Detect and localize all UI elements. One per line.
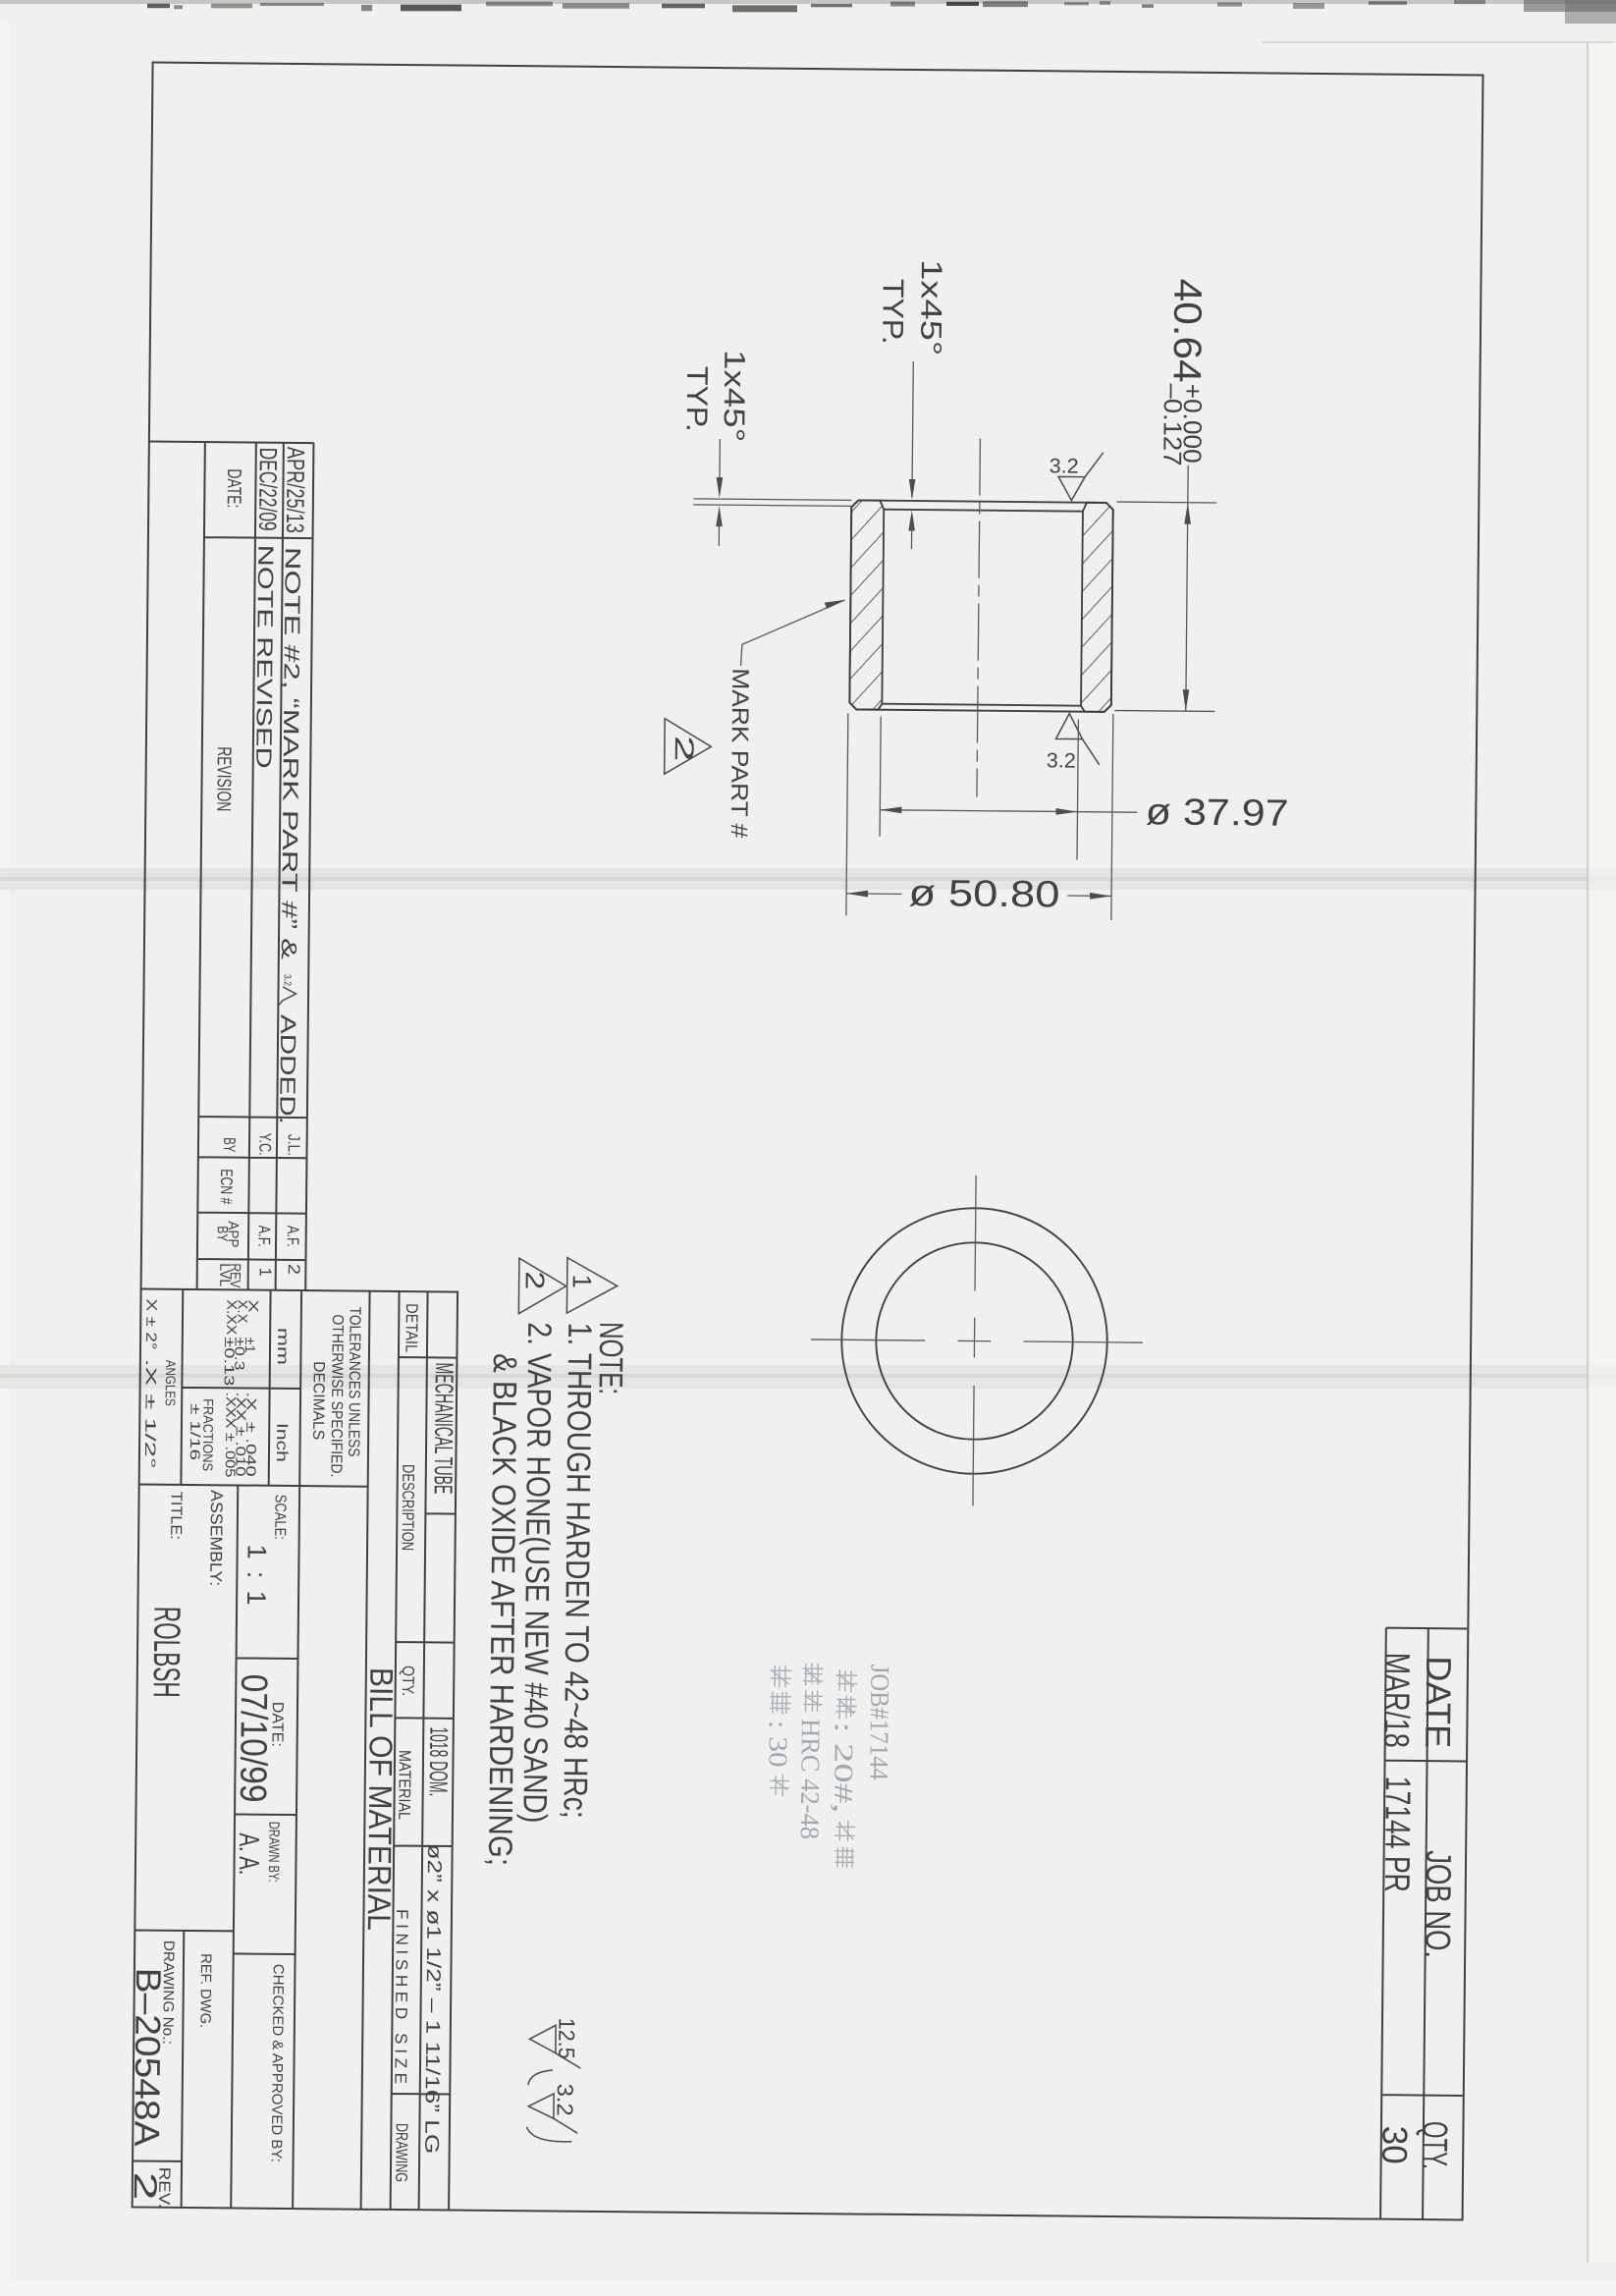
svg-text:mm: mm	[274, 1328, 291, 1365]
svg-text:LVL: LVL	[216, 1263, 233, 1286]
svg-text:A. A.: A. A.	[233, 1832, 264, 1875]
svg-text:NOTE REVISED: NOTE REVISED	[251, 545, 278, 769]
svg-text:17144 PR: 17144 PR	[1377, 1777, 1419, 1892]
svg-text:: 30: : 30	[763, 1721, 792, 1768]
svg-text:ø 50.80: ø 50.80	[908, 873, 1059, 915]
svg-text:FINISHED SIZE: FINISHED SIZE	[391, 1909, 411, 2084]
svg-text:DECIMALS: DECIMALS	[309, 1361, 327, 1440]
svg-text:.X ± 1/2°: .X ± 1/2°	[141, 1359, 159, 1469]
svg-text:3.2: 3.2	[282, 974, 293, 986]
svg-text:MARK PART #: MARK PART #	[726, 668, 754, 839]
svg-text:BY: BY	[220, 1137, 239, 1152]
svg-text:A.F.: A.F.	[254, 1226, 273, 1247]
svg-text:JOB NO.: JOB NO.	[1418, 1850, 1459, 1958]
svg-text:07/10/99: 07/10/99	[232, 1673, 274, 1802]
svg-text:2: 2	[520, 1271, 550, 1289]
svg-text:±0.13: ±0.13	[222, 1337, 238, 1386]
svg-text:SCALE:: SCALE:	[271, 1495, 288, 1540]
svg-text:ANGLES: ANGLES	[163, 1360, 179, 1406]
svg-text:ø2” x ø1 1/2” – 1 11/16” LG: ø2” x ø1 1/2” – 1 11/16” LG	[420, 1843, 445, 2154]
svg-text:Inch: Inch	[273, 1423, 290, 1462]
svg-text:CHECKED & APPROVED BY:: CHECKED & APPROVED BY:	[268, 1964, 287, 2162]
svg-text:J.L.: J.L.	[285, 1134, 303, 1156]
svg-text:REF. DWG.: REF. DWG.	[196, 1953, 214, 2028]
svg-text:3.2: 3.2	[1047, 749, 1076, 772]
svg-text:1: 1	[567, 1275, 597, 1288]
svg-text:BILL OF MATERIAL: BILL OF MATERIAL	[361, 1667, 401, 1931]
svg-text:JOB#17144: JOB#17144	[864, 1665, 894, 1781]
svg-text:B–20548A: B–20548A	[127, 1967, 169, 2146]
svg-text:TITLE:: TITLE:	[167, 1492, 184, 1540]
svg-text:2: 2	[128, 2171, 164, 2200]
svg-text:X ± 2°: X ± 2°	[142, 1299, 159, 1350]
svg-text:ASSEMBLY:: ASSEMBLY:	[206, 1490, 226, 1586]
svg-text:DESCRIPTION: DESCRIPTION	[399, 1464, 418, 1551]
svg-text:–0.127: –0.127	[1158, 383, 1188, 465]
svg-text:DATE: DATE	[1418, 1656, 1459, 1748]
svg-text:DRAWN BY:: DRAWN BY:	[265, 1822, 283, 1883]
svg-text:MECHANICAL TUBE: MECHANICAL TUBE	[429, 1362, 459, 1494]
svg-text:ADDED.: ADDED.	[275, 1014, 300, 1124]
svg-text:2: 2	[285, 1264, 303, 1275]
svg-text:TYP.: TYP.	[876, 279, 909, 345]
svg-text:DEC/22/09: DEC/22/09	[253, 448, 282, 531]
svg-text:HRC 42-48: HRC 42-48	[795, 1719, 826, 1839]
svg-text:12.5: 12.5	[554, 2018, 579, 2059]
svg-text:1: 1	[256, 1268, 275, 1277]
svg-text:OTHERWISE SPECIFIED.: OTHERWISE SPECIFIED.	[327, 1314, 346, 1477]
svg-text:1018 DOM.: 1018 DOM.	[424, 1726, 455, 1796]
svg-text:A.F.: A.F.	[284, 1226, 302, 1247]
svg-text:.XXX ± .005: .XXX ± .005	[223, 1392, 240, 1477]
svg-text:Y.C.: Y.C.	[255, 1133, 274, 1156]
svg-text:& BLACK OXIDE AFTER HARDENING;: & BLACK OXIDE AFTER HARDENING;	[481, 1353, 523, 1866]
svg-text:DETAIL: DETAIL	[402, 1303, 420, 1352]
svg-text:ECN #: ECN #	[217, 1169, 236, 1205]
svg-text:X.XX: X.XX	[224, 1299, 240, 1336]
svg-text:TOLERANCES UNLESS: TOLERANCES UNLESS	[345, 1306, 362, 1456]
svg-text:QTY.: QTY.	[399, 1666, 417, 1696]
svg-text:DRAWING: DRAWING	[392, 2123, 411, 2182]
svg-text:1. THROUGH HARDEN TO 42~48 HRc: 1. THROUGH HARDEN TO 42~48 HRc;	[556, 1323, 598, 1819]
svg-text:TYP.: TYP.	[680, 366, 714, 432]
svg-text:± 1/16: ± 1/16	[188, 1403, 204, 1460]
svg-text:1:1: 1:1	[242, 1544, 272, 1605]
svg-text:BY: BY	[214, 1226, 231, 1241]
svg-text:3.2: 3.2	[1050, 455, 1079, 477]
svg-text:QTY.: QTY.	[1415, 2121, 1455, 2169]
svg-text:MATERIAL: MATERIAL	[395, 1750, 414, 1820]
svg-text:ø 37.97: ø 37.97	[1145, 792, 1288, 834]
svg-text:MAR/18: MAR/18	[1376, 1653, 1418, 1748]
svg-text:1x45°: 1x45°	[717, 350, 750, 442]
svg-text:REVISION: REVISION	[212, 746, 235, 811]
svg-text:30: 30	[1374, 2126, 1415, 2164]
svg-text:NOTE #2, “MARK PART #” &: NOTE #2, “MARK PART #” &	[277, 547, 305, 960]
svg-text:: 20#,: : 20#,	[829, 1722, 859, 1813]
svg-text:40.64: 40.64	[1164, 278, 1209, 382]
svg-text:APR/25/13: APR/25/13	[281, 447, 309, 533]
svg-text:1x45°: 1x45°	[914, 259, 947, 355]
svg-text:3.2: 3.2	[553, 2084, 578, 2116]
svg-text:2: 2	[670, 736, 699, 762]
svg-text:DATE:: DATE:	[223, 468, 244, 508]
svg-text:ROLBSH: ROLBSH	[145, 1607, 188, 1698]
